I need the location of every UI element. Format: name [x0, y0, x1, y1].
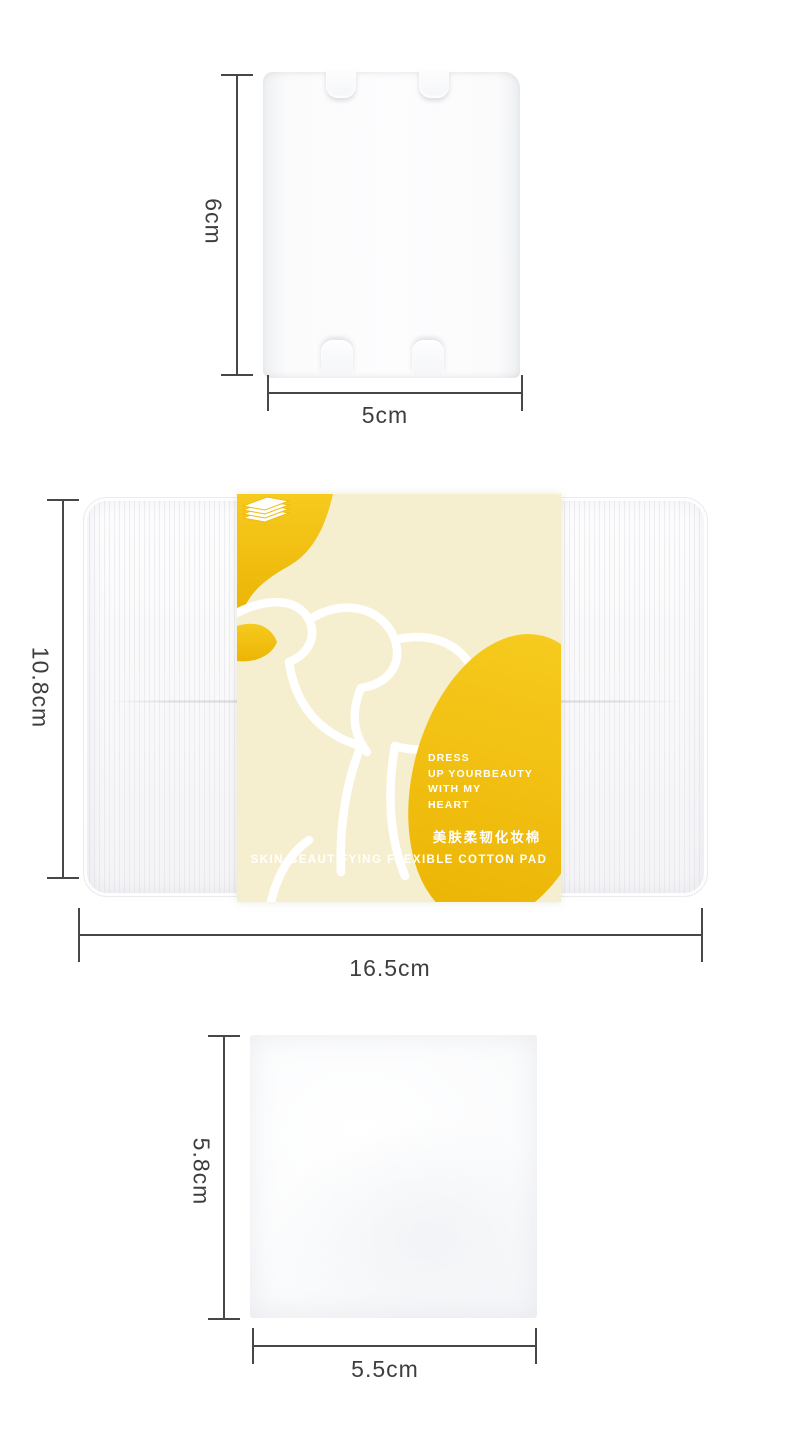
width-measure-line — [267, 392, 523, 394]
tagline-line: UP YOURBEAUTY — [428, 767, 533, 783]
tagline-line: HEART — [428, 798, 533, 814]
height-measure-line — [62, 500, 64, 878]
height-measure-line — [236, 75, 238, 375]
pad-tab — [412, 340, 444, 374]
height-measure-line — [223, 1036, 225, 1319]
width-measure-line — [78, 934, 703, 936]
product-dimension-sheet: 6cm 5cm — [0, 0, 790, 1449]
cotton-square-photo — [250, 1035, 537, 1318]
tagline-line: WITH MY — [428, 782, 533, 798]
width-measure-line — [252, 1345, 537, 1347]
chinese-product-label: 美肤柔韧化妆棉 — [422, 826, 552, 846]
cotton-pad-stack-icon — [237, 494, 295, 524]
width-measure-label: 5.5cm — [325, 1356, 445, 1383]
english-product-label: SKIN-BEAUTIFYING FLEXIBLE COTTON PAD — [237, 854, 561, 866]
cotton-pad-photo — [263, 72, 520, 378]
height-measure-label: 10.8cm — [27, 643, 54, 733]
pad-tab — [419, 70, 449, 98]
width-measure-label: 5cm — [335, 402, 435, 429]
height-measure-label: 5.8cm — [188, 1130, 215, 1214]
height-measure-label: 6cm — [200, 187, 227, 257]
label-band: DRESS UP YOURBEAUTY WITH MY HEART 美肤柔韧化妆… — [237, 494, 561, 902]
band-tagline: DRESS UP YOURBEAUTY WITH MY HEART — [428, 751, 533, 813]
pad-tab — [326, 70, 356, 98]
pad-tab — [321, 340, 353, 374]
tagline-line: DRESS — [428, 751, 533, 767]
width-measure-label: 16.5cm — [320, 955, 460, 982]
